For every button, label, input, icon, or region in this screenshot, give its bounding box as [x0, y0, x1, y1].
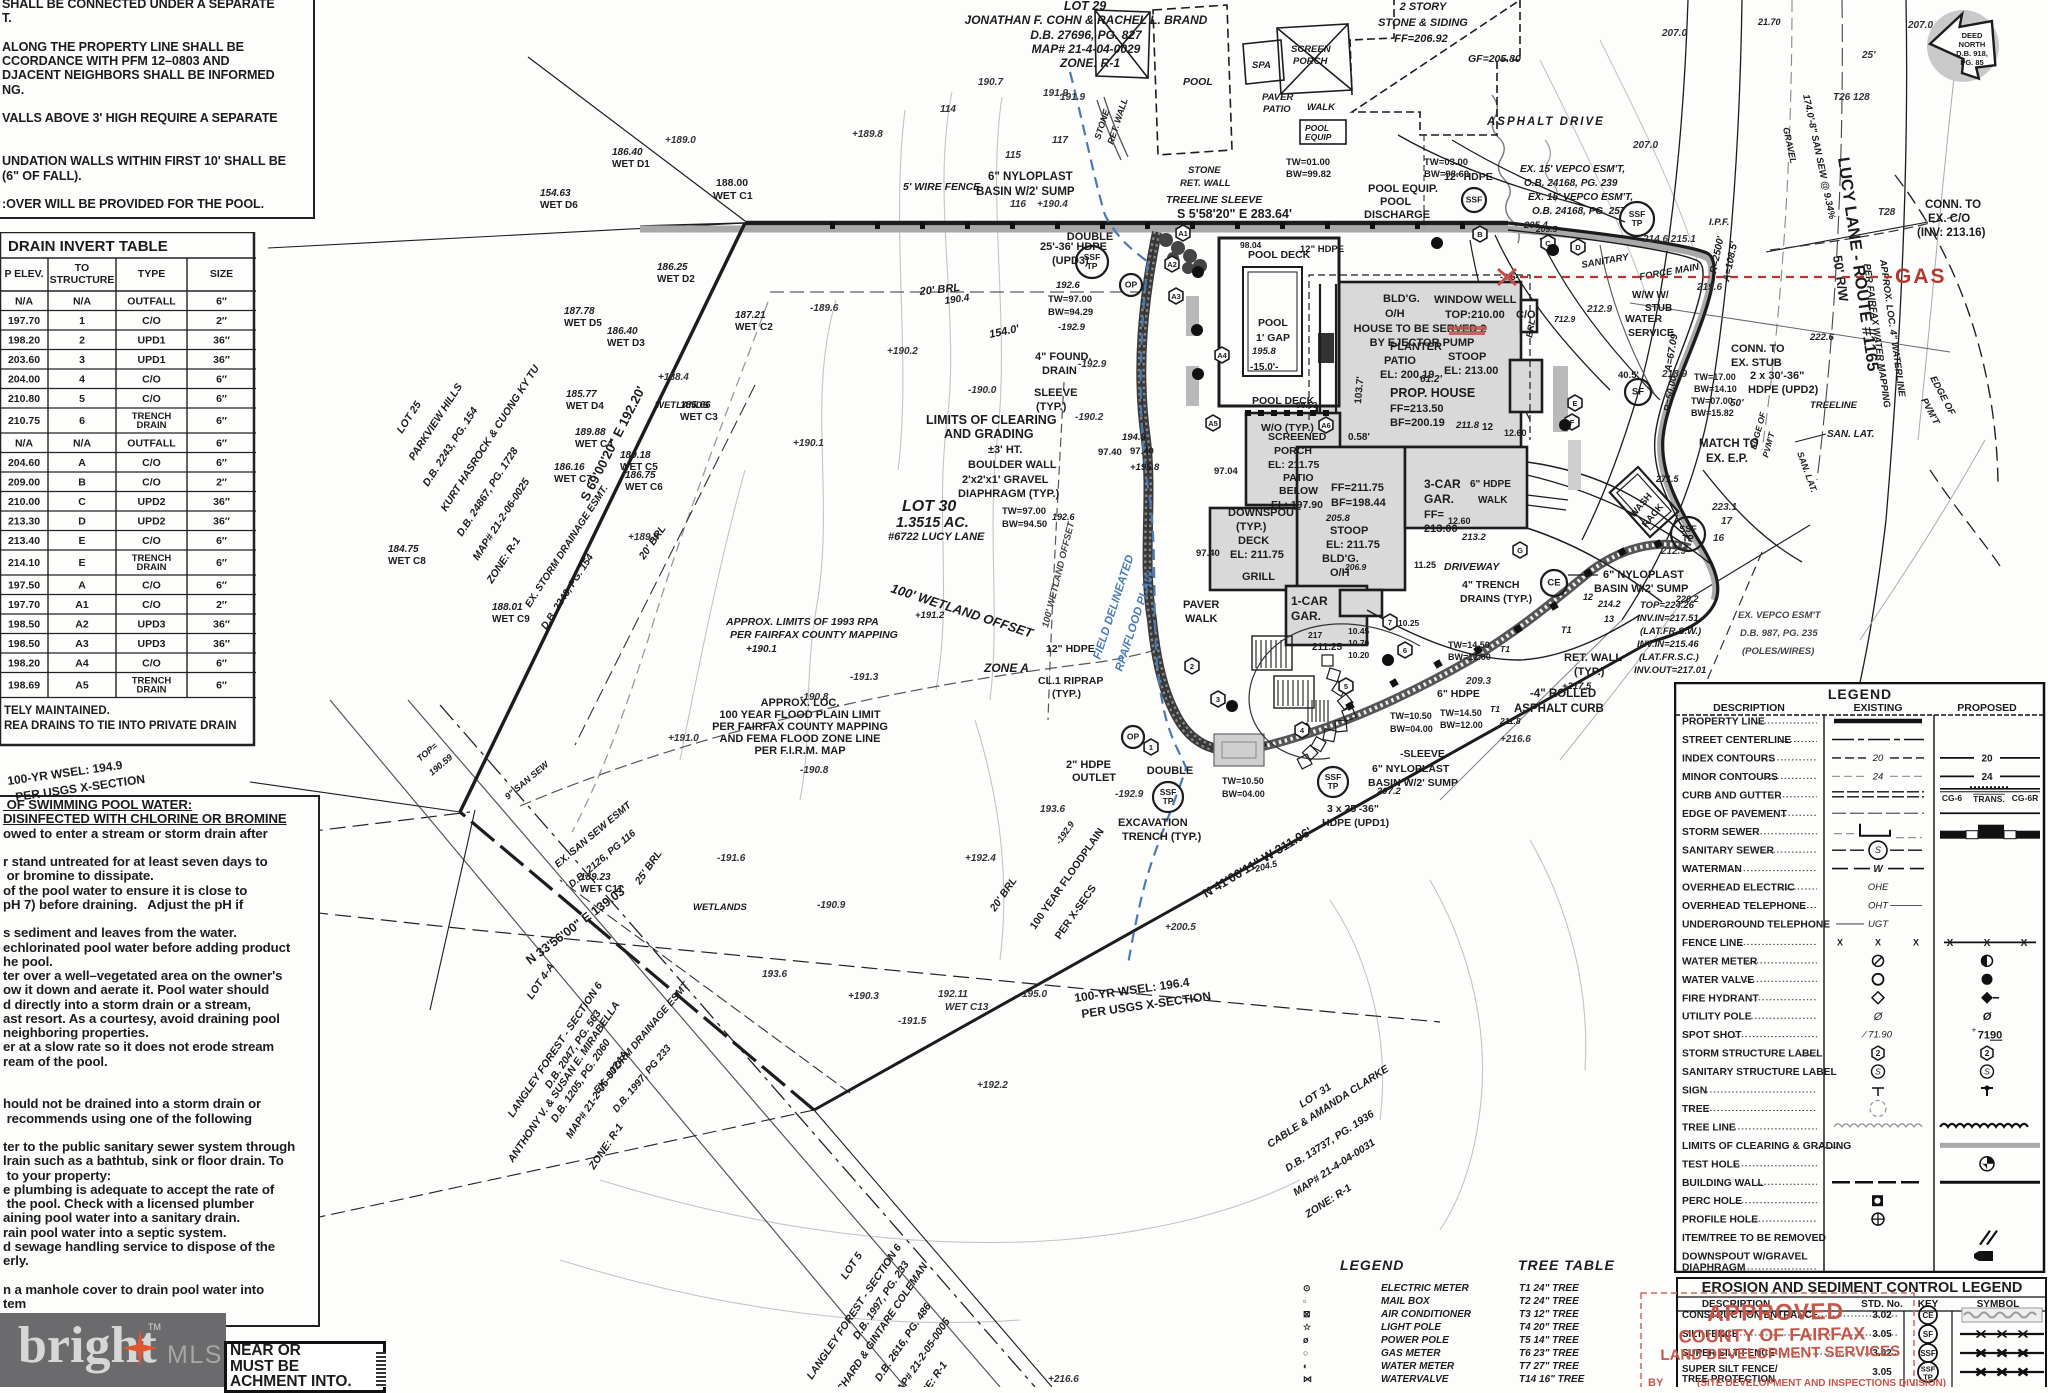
svg-text:SLEEVE: SLEEVE	[1034, 387, 1077, 399]
svg-text:LIMITS OF CLEARING & GRADING: LIMITS OF CLEARING & GRADING	[1682, 1141, 1851, 1152]
svg-text:RET. WALL: RET. WALL	[1564, 652, 1622, 664]
svg-text:TRENCH (TYP.): TRENCH (TYP.)	[1122, 831, 1202, 843]
svg-text:-4" ROLLED: -4" ROLLED	[1530, 688, 1596, 700]
svg-text:DESCRIPTION: DESCRIPTION	[1713, 702, 1785, 714]
svg-text:EL: 213.00: EL: 213.00	[1444, 365, 1498, 377]
svg-text:3 x 25'-36": 3 x 25'-36"	[1327, 803, 1379, 815]
svg-text:WATER METER: WATER METER	[1381, 1361, 1455, 1372]
svg-text:MAP# 21-2-06-0025: MAP# 21-2-06-0025	[470, 476, 532, 562]
svg-text:PORCH: PORCH	[1274, 445, 1312, 457]
svg-text:Ø: Ø	[1873, 1011, 1884, 1023]
svg-text:712.9: 712.9	[1554, 314, 1576, 324]
svg-text:-192.9: -192.9	[1058, 322, 1086, 333]
svg-text:213.40: 213.40	[8, 535, 40, 547]
svg-text:+192.4: +192.4	[965, 853, 996, 864]
svg-text:C/O: C/O	[142, 476, 161, 488]
svg-text:DRAIN: DRAIN	[136, 685, 166, 696]
svg-text:D.B. 27696, PG. 827: D.B. 27696, PG. 827	[1030, 28, 1143, 42]
svg-text:BW=94.29: BW=94.29	[1048, 307, 1093, 318]
svg-text:STRUCTURE: STRUCTURE	[50, 274, 115, 286]
svg-text:6" NYLOPLAST: 6" NYLOPLAST	[1603, 569, 1684, 581]
svg-text:WET C1: WET C1	[713, 190, 753, 202]
svg-text:2: 2	[1190, 662, 1194, 671]
svg-text:DRAIN: DRAIN	[1042, 365, 1077, 377]
svg-text:1-CAR: 1-CAR	[1291, 594, 1328, 608]
svg-text:17: 17	[1721, 516, 1733, 527]
svg-text:6″: 6″	[216, 457, 227, 469]
svg-text:S 5'58'20" E 283.64': S 5'58'20" E 283.64'	[1177, 207, 1292, 221]
svg-text:194.8: 194.8	[1122, 451, 1123, 452]
svg-text:12: 12	[1482, 422, 1494, 433]
svg-text:BELOW: BELOW	[1279, 485, 1318, 497]
svg-text:T6 23" TREE: T6 23" TREE	[1519, 1348, 1579, 1359]
svg-text:+189.8: +189.8	[852, 129, 883, 140]
svg-text:X: X	[1913, 937, 1919, 947]
svg-text:PERC HOLE: PERC HOLE	[1682, 1196, 1742, 1207]
svg-text:ASPHALT DRIVE: ASPHALT DRIVE	[1486, 116, 1605, 128]
svg-text:1' GAP: 1' GAP	[1256, 332, 1290, 344]
svg-text:2″: 2″	[216, 476, 227, 488]
svg-text:BW=15.82: BW=15.82	[1691, 408, 1734, 418]
svg-text:FF=211.75: FF=211.75	[1331, 482, 1384, 494]
svg-text:MINOR CONTOURS: MINOR CONTOURS	[1682, 772, 1778, 783]
svg-text:DRIVEWAY: DRIVEWAY	[1444, 561, 1500, 573]
svg-text:PER FAIRFAX COUNTY MAPPING: PER FAIRFAX COUNTY MAPPING	[730, 629, 898, 641]
svg-text:T1: T1	[1561, 625, 1572, 635]
svg-text:210.00: 210.00	[8, 496, 40, 508]
svg-text:TW=01.00: TW=01.00	[1286, 157, 1330, 168]
svg-text:6″: 6″	[216, 437, 227, 449]
svg-text:CE: CE	[1547, 578, 1560, 589]
svg-text:BOULDER WALL: BOULDER WALL	[968, 459, 1057, 471]
svg-text:207.0: 207.0	[1907, 20, 1933, 31]
svg-text:MAP# 21-4-04-0029: MAP# 21-4-04-0029	[1032, 42, 1141, 56]
svg-text:6: 6	[79, 415, 85, 427]
svg-text:TW=17.00: TW=17.00	[1694, 372, 1736, 382]
svg-text:100' WETLAND OFFSET: 100' WETLAND OFFSET	[1040, 520, 1077, 629]
svg-text:WET C13: WET C13	[945, 1002, 989, 1013]
svg-text:WET D5: WET D5	[564, 318, 602, 329]
svg-text:DRAIN: DRAIN	[136, 562, 166, 573]
svg-text:187.78: 187.78	[564, 306, 595, 317]
svg-text:61.2': 61.2'	[1420, 374, 1442, 385]
svg-text:10.25: 10.25	[1398, 618, 1420, 628]
svg-text:PARKVIEW HILLS: PARKVIEW HILLS	[406, 381, 465, 462]
svg-text:WET D6: WET D6	[540, 200, 578, 211]
svg-text:PATIO: PATIO	[1384, 355, 1416, 367]
svg-text:BW=94.50: BW=94.50	[1002, 519, 1047, 530]
svg-text:21.70: 21.70	[1757, 17, 1781, 27]
svg-text:186.40: 186.40	[612, 147, 643, 158]
svg-text:X: X	[1984, 938, 1991, 949]
svg-text:DESCRIPTION: DESCRIPTION	[1702, 1299, 1770, 1310]
svg-text:SPA: SPA	[1252, 60, 1271, 71]
svg-text:197.70: 197.70	[8, 599, 40, 611]
svg-text:189.88: 189.88	[575, 427, 606, 438]
svg-text:HDPE (UPD2): HDPE (UPD2)	[1748, 384, 1819, 396]
svg-text:16: 16	[1713, 533, 1725, 544]
svg-text:WATER VALVE: WATER VALVE	[1682, 975, 1754, 986]
svg-text:UTILITY POLE: UTILITY POLE	[1682, 1012, 1752, 1023]
svg-text:10.70: 10.70	[1348, 638, 1370, 648]
svg-text:G: G	[1517, 546, 1523, 555]
svg-text:97.40: 97.40	[1196, 548, 1220, 559]
svg-text:6″: 6″	[216, 557, 227, 569]
svg-text:X: X	[1875, 937, 1881, 947]
svg-text:GF=205.80: GF=205.80	[1468, 53, 1521, 65]
svg-text:STORM STRUCTURE LABEL: STORM STRUCTURE LABEL	[1682, 1049, 1823, 1060]
svg-text:25': 25'	[1861, 50, 1876, 61]
svg-text:24: 24	[1872, 771, 1884, 782]
svg-text:4: 4	[79, 373, 85, 385]
svg-text:+190.4: +190.4	[1037, 199, 1068, 210]
svg-text:RET. WALL: RET. WALL	[1105, 97, 1129, 146]
svg-text:36″: 36″	[213, 638, 230, 650]
svg-text:DIAPHRAGM: DIAPHRAGM	[1682, 1263, 1746, 1273]
svg-text:6″: 6″	[216, 393, 227, 405]
svg-text:+190.2: +190.2	[887, 346, 918, 357]
svg-text:CE: CE	[1922, 1311, 1934, 1320]
svg-text:CONN. TO: CONN. TO	[1731, 343, 1785, 355]
svg-text:WET C3: WET C3	[680, 412, 718, 423]
svg-text:205.8: 205.8	[1325, 513, 1350, 524]
svg-text:100 YEAR FLOOD PLAIN LIMIT: 100 YEAR FLOOD PLAIN LIMIT	[719, 709, 880, 721]
svg-text:E: E	[78, 535, 85, 547]
svg-text:TOP:210.00: TOP:210.00	[1445, 309, 1505, 321]
svg-text:TELY MAINTAINED.: TELY MAINTAINED.	[4, 705, 110, 717]
svg-text:ZONE: R-1: ZONE: R-1	[586, 1121, 626, 1172]
svg-text:PATIO: PATIO	[1263, 104, 1291, 115]
svg-text:190.7: 190.7	[978, 77, 1003, 88]
svg-text:6″: 6″	[216, 535, 227, 547]
svg-text:OVERHEAD TELEPHONE: OVERHEAD TELEPHONE	[1682, 901, 1806, 912]
svg-text:A3: A3	[1171, 292, 1181, 301]
svg-text:11.25: 11.25	[1414, 560, 1436, 570]
svg-text:T3 12" TREE: T3 12" TREE	[1519, 1309, 1579, 1320]
svg-text:FIRE HYDRANT: FIRE HYDRANT	[1682, 993, 1759, 1004]
svg-text:A1: A1	[75, 599, 89, 611]
svg-text:LOT 5: LOT 5	[839, 1250, 866, 1282]
svg-text:BW=14.10: BW=14.10	[1694, 384, 1737, 394]
svg-text:PLANTER: PLANTER	[1390, 341, 1442, 353]
svg-text:-190.0: -190.0	[968, 385, 997, 396]
svg-text:STORM SEWER: STORM SEWER	[1682, 827, 1760, 838]
svg-text:C/O: C/O	[1516, 309, 1536, 321]
svg-text:SANITARY: SANITARY	[1581, 252, 1632, 271]
svg-text:TREE TABLE: TREE TABLE	[1518, 1257, 1615, 1273]
svg-text:191.9: 191.9	[1043, 88, 1068, 99]
svg-text:C/O: C/O	[142, 599, 161, 611]
svg-text:A: A	[78, 457, 86, 469]
svg-text:193.6: 193.6	[1082, 821, 1083, 822]
svg-text:POOL EQUIP.: POOL EQUIP.	[1368, 183, 1438, 195]
svg-text:INDEX CONTOURS: INDEX CONTOURS	[1682, 753, 1775, 764]
svg-text:-3.5-: -3.5-	[1500, 272, 1519, 282]
svg-text:O/H: O/H	[1385, 308, 1405, 320]
svg-text:C/O: C/O	[142, 535, 161, 547]
svg-text:SCREEN: SCREEN	[1291, 44, 1332, 55]
svg-text:198.20: 198.20	[8, 334, 40, 346]
svg-text:2: 2	[1985, 1048, 1990, 1058]
svg-text:DOWNSPOUT W/GRAVEL: DOWNSPOUT W/GRAVEL	[1682, 1252, 1808, 1263]
svg-text:9" SAN SEW: 9" SAN SEW	[503, 758, 552, 801]
svg-text:POWER POLE: POWER POLE	[1381, 1335, 1449, 1346]
svg-text:6″: 6″	[216, 415, 227, 427]
svg-text:+190.1: +190.1	[793, 438, 824, 449]
svg-text:ZONE: R-1: ZONE: R-1	[1059, 56, 1120, 70]
svg-text:186.25: 186.25	[657, 262, 688, 273]
svg-text:▫: ▫	[1303, 1296, 1306, 1306]
svg-text:N/A: N/A	[15, 295, 34, 307]
svg-text:D.B. 24867, PG. 1728: D.B. 24867, PG. 1728	[454, 445, 520, 538]
svg-text:97.40: 97.40	[1098, 447, 1122, 458]
svg-text:T14 16" TREE: T14 16" TREE	[1519, 1374, 1585, 1385]
svg-text:+189.0: +189.0	[665, 135, 696, 146]
svg-text:6: 6	[1403, 646, 1407, 655]
svg-text:EX. 15' VEPCO ESM'T,: EX. 15' VEPCO ESM'T,	[1520, 164, 1625, 175]
svg-text:LOT 30: LOT 30	[902, 498, 956, 515]
svg-text:190.4: 190.4	[944, 293, 971, 307]
svg-text:100' WETLAND OFFSET: 100' WETLAND OFFSET	[889, 581, 1036, 641]
svg-text:GAR.: GAR.	[1291, 609, 1321, 623]
svg-text:P ELEV.: P ELEV.	[4, 268, 43, 280]
svg-text:198.50: 198.50	[8, 618, 40, 630]
svg-text:D.B. 2243, PG. 154: D.B. 2243, PG. 154	[539, 552, 596, 632]
svg-text:TW=03.00: TW=03.00	[1424, 157, 1468, 168]
svg-text:20: 20	[1981, 753, 1993, 764]
svg-text:3: 3	[79, 354, 85, 366]
svg-text:10.20: 10.20	[1348, 650, 1370, 660]
svg-text:TW=14.50: TW=14.50	[1440, 708, 1482, 718]
svg-text:24: 24	[1981, 772, 1993, 783]
svg-text:PATIO: PATIO	[1283, 472, 1314, 484]
svg-text:(TYP.): (TYP.)	[1036, 401, 1067, 413]
svg-text:214.6 215.1: 214.6 215.1	[1642, 234, 1696, 245]
svg-text:N/A: N/A	[73, 295, 92, 307]
svg-text:204.60: 204.60	[8, 457, 40, 469]
svg-text:C/O: C/O	[142, 373, 161, 385]
svg-text:WET C9: WET C9	[492, 614, 530, 625]
svg-text:EX. C/O: EX. C/O	[1928, 213, 1970, 225]
svg-text:+195.8: +195.8	[1130, 462, 1160, 473]
svg-text:A1: A1	[1178, 229, 1188, 238]
svg-text:B: B	[78, 476, 86, 488]
svg-text:PER F.I.R.M. MAP: PER F.I.R.M. MAP	[754, 745, 845, 757]
svg-text:DOUBLE: DOUBLE	[1147, 765, 1193, 777]
svg-text:5: 5	[1344, 682, 1348, 691]
svg-text:LOT 25: LOT 25	[394, 399, 424, 436]
svg-text:GRILL: GRILL	[1242, 571, 1275, 583]
svg-text:WET C6: WET C6	[625, 482, 663, 493]
svg-text:BRL: BRL	[1524, 318, 1537, 338]
svg-text:TREE PROTECTION: TREE PROTECTION	[1682, 1374, 1775, 1385]
svg-text:TW=97.00: TW=97.00	[1002, 506, 1046, 517]
svg-text:210.80: 210.80	[8, 393, 40, 405]
svg-text:6″: 6″	[216, 295, 227, 307]
svg-text:T1: T1	[1490, 704, 1500, 714]
svg-text:36″: 36″	[213, 618, 230, 630]
svg-text:FF=213.50: FF=213.50	[1390, 403, 1444, 415]
svg-text:2″: 2″	[216, 599, 227, 611]
svg-text:+216.6: +216.6	[1048, 1374, 1079, 1385]
svg-text:STONE: STONE	[1188, 165, 1221, 176]
svg-text:+200.5: +200.5	[1165, 922, 1196, 933]
svg-text:BF=200.19: BF=200.19	[1390, 417, 1445, 429]
svg-text:TRANS.: TRANS.	[1973, 794, 2005, 804]
svg-text:CG-6R: CG-6R	[2012, 793, 2038, 803]
svg-text:SSF: SSF	[1466, 195, 1483, 205]
svg-text:AND GRADING: AND GRADING	[944, 427, 1034, 441]
svg-text:GRAVEL: GRAVEL	[1781, 126, 1798, 164]
svg-text:SSF: SSF	[1920, 1349, 1936, 1358]
svg-text:STD. No.: STD. No.	[1861, 1299, 1903, 1310]
svg-text:-190.9: -190.9	[817, 900, 846, 911]
svg-text:SIZE: SIZE	[210, 268, 233, 280]
svg-text:187.21: 187.21	[735, 310, 766, 321]
svg-text:203.60: 203.60	[8, 354, 40, 366]
svg-text:PROPERTY LINE: PROPERTY LINE	[1682, 717, 1765, 728]
svg-text:STOOP: STOOP	[1330, 525, 1368, 537]
svg-text:BLD'G.: BLD'G.	[1383, 293, 1420, 305]
svg-text:T5 14" TREE: T5 14" TREE	[1519, 1335, 1579, 1346]
svg-text:W/W W/: W/W W/	[1632, 290, 1669, 301]
svg-text:2'x2'x1' GRAVEL: 2'x2'x1' GRAVEL	[962, 474, 1049, 486]
svg-text:WINDOW WELL: WINDOW WELL	[1434, 294, 1517, 306]
svg-text:PROP. HOUSE: PROP. HOUSE	[1390, 386, 1475, 400]
svg-text:DOWNSPOUT: DOWNSPOUT	[1228, 507, 1301, 519]
svg-text:EDGE OF PAVEMENT: EDGE OF PAVEMENT	[1682, 809, 1788, 820]
svg-text:O.B. 24168, PG. 239: O.B. 24168, PG. 239	[1524, 178, 1618, 189]
svg-text:207.0: 207.0	[1632, 140, 1658, 151]
svg-text:6" HDPE: 6" HDPE	[1470, 479, 1511, 490]
svg-text:6″: 6″	[216, 680, 227, 692]
svg-text:+216.6: +216.6	[1500, 734, 1531, 745]
svg-text:DECK: DECK	[1238, 535, 1269, 547]
svg-text:WET C2: WET C2	[735, 322, 773, 333]
svg-text:PAVER: PAVER	[1262, 92, 1293, 103]
svg-text:1: 1	[1149, 743, 1153, 752]
svg-text:193.6: 193.6	[762, 969, 787, 980]
svg-text:POOL DECK: POOL DECK	[1362, 246, 1363, 247]
svg-text:EL: 211.75: EL: 211.75	[1268, 459, 1320, 471]
svg-text:TP: TP	[1923, 1373, 1933, 1382]
svg-text:116: 116	[1010, 199, 1026, 210]
svg-text:EROSION AND SEDIMENT CONTRO: EROSION AND SEDIMENT CONTROL LEGEND	[1702, 1280, 2023, 1296]
svg-text:SAN. LAT.: SAN. LAT.	[1795, 450, 1819, 494]
svg-text:TEST HOLE: TEST HOLE	[1682, 1159, 1740, 1170]
svg-text:TP: TP	[1632, 218, 1643, 228]
svg-text:SERVICE: SERVICE	[1628, 327, 1674, 339]
svg-text:OP: OP	[1127, 732, 1140, 742]
svg-text:PROFILE HOLE: PROFILE HOLE	[1682, 1215, 1758, 1226]
svg-text:(TYP.): (TYP.)	[1574, 666, 1605, 678]
svg-text:BUILDING WALL: BUILDING WALL	[1682, 1178, 1764, 1189]
svg-text:207.0: 207.0	[1661, 28, 1687, 39]
svg-text:2 STORY: 2 STORY	[1399, 1, 1448, 13]
svg-text:A5: A5	[75, 680, 89, 692]
svg-text:50': 50'	[1730, 398, 1744, 409]
svg-text:192.11: 192.11	[938, 989, 968, 1000]
svg-text:+190.1: +190.1	[746, 644, 777, 655]
svg-text:6″: 6″	[216, 657, 227, 669]
svg-text:214.2: 214.2	[1597, 599, 1621, 609]
svg-text:192.6: 192.6	[1056, 280, 1080, 291]
svg-text:-191.3: -191.3	[850, 672, 879, 683]
svg-text:☆: ☆	[1303, 1322, 1312, 1332]
svg-text:SSF: SSF	[1679, 524, 1697, 534]
svg-text:TREE: TREE	[1682, 1104, 1710, 1115]
svg-text:INV.IN=215.46: INV.IN=215.46	[1637, 639, 1699, 650]
svg-text:A5: A5	[1208, 419, 1218, 428]
svg-text:EQUIP: EQUIP	[1305, 132, 1332, 142]
svg-text:LEGEND: LEGEND	[1340, 1257, 1404, 1273]
svg-text:D.B. 987, PG. 235: D.B. 987, PG. 235	[1740, 628, 1818, 639]
svg-text:186.40: 186.40	[607, 326, 638, 337]
svg-text:222.6: 222.6	[1809, 332, 1834, 343]
svg-text:4" TRENCH: 4" TRENCH	[1462, 579, 1519, 591]
svg-text:206.9: 206.9	[1344, 562, 1367, 572]
svg-text:213.30: 213.30	[8, 515, 40, 527]
svg-text:STOOP: STOOP	[1448, 351, 1486, 363]
svg-text:FORCE MAIN: FORCE MAIN	[1639, 261, 1701, 282]
svg-text:T4 20" TREE: T4 20" TREE	[1519, 1322, 1579, 1333]
svg-text:WET D1: WET D1	[612, 159, 650, 170]
svg-text:TP: TP	[1328, 781, 1339, 791]
svg-text:C: C	[78, 496, 86, 508]
svg-text:∕ 71.90: ∕ 71.90	[1861, 1030, 1893, 1041]
svg-text:EX. 15' VEPCO ESM'T,: EX. 15' VEPCO ESM'T,	[1528, 192, 1633, 203]
svg-text:N/A: N/A	[15, 437, 34, 449]
svg-text:UGT: UGT	[1868, 919, 1889, 930]
svg-text:219.6: 219.6	[1696, 282, 1722, 293]
svg-text:217: 217	[1308, 630, 1322, 640]
svg-text:40.5': 40.5'	[1618, 370, 1639, 381]
svg-text:WETLANDS: WETLANDS	[693, 902, 747, 913]
svg-text:20: 20	[1872, 753, 1884, 764]
svg-text:T1 24" TREE: T1 24" TREE	[1519, 1283, 1579, 1294]
svg-text:214.10: 214.10	[8, 557, 40, 569]
svg-text:2" HDPE: 2" HDPE	[1066, 759, 1111, 771]
svg-text:SUPER SILT FENCE: SUPER SILT FENCE	[1682, 1348, 1775, 1359]
svg-text:D.B. 918,: D.B. 918,	[1956, 49, 1988, 58]
svg-text:EXCAVATION: EXCAVATION	[1118, 817, 1188, 829]
svg-text:PROPOSED: PROPOSED	[1957, 702, 2017, 714]
svg-text:WATERMAN: WATERMAN	[1682, 864, 1742, 875]
svg-text:SANITARY SEWER: SANITARY SEWER	[1682, 846, 1774, 857]
svg-text:C/O: C/O	[142, 657, 161, 669]
svg-text:207.2: 207.2	[1376, 786, 1401, 797]
svg-text:±3' HT.: ±3' HT.	[988, 444, 1022, 456]
svg-text:114: 114	[940, 104, 956, 115]
svg-text:271.5: 271.5	[1655, 474, 1680, 484]
svg-text:UPD1: UPD1	[137, 354, 165, 366]
svg-text:D: D	[78, 515, 86, 527]
svg-text:T28: T28	[1878, 207, 1896, 218]
svg-text:WALK: WALK	[1185, 613, 1217, 625]
svg-text:EX. STUB: EX. STUB	[1731, 357, 1782, 369]
svg-text:212.9: 212.9	[1586, 304, 1612, 315]
svg-text:UPD3: UPD3	[137, 618, 165, 630]
svg-text:POOL: POOL	[1258, 317, 1288, 329]
svg-text:6" HDPE: 6" HDPE	[1437, 688, 1480, 700]
svg-text:⋈: ⋈	[1303, 1374, 1312, 1384]
svg-text:3.02: 3.02	[1872, 1310, 1892, 1321]
svg-text:BW=04.00: BW=04.00	[1222, 789, 1265, 799]
svg-text:198.69: 198.69	[8, 680, 40, 692]
svg-text:UPD2: UPD2	[137, 515, 165, 527]
svg-text:4" FOUND.: 4" FOUND.	[1035, 351, 1092, 363]
svg-text:-192.9: -192.9	[1053, 819, 1076, 846]
